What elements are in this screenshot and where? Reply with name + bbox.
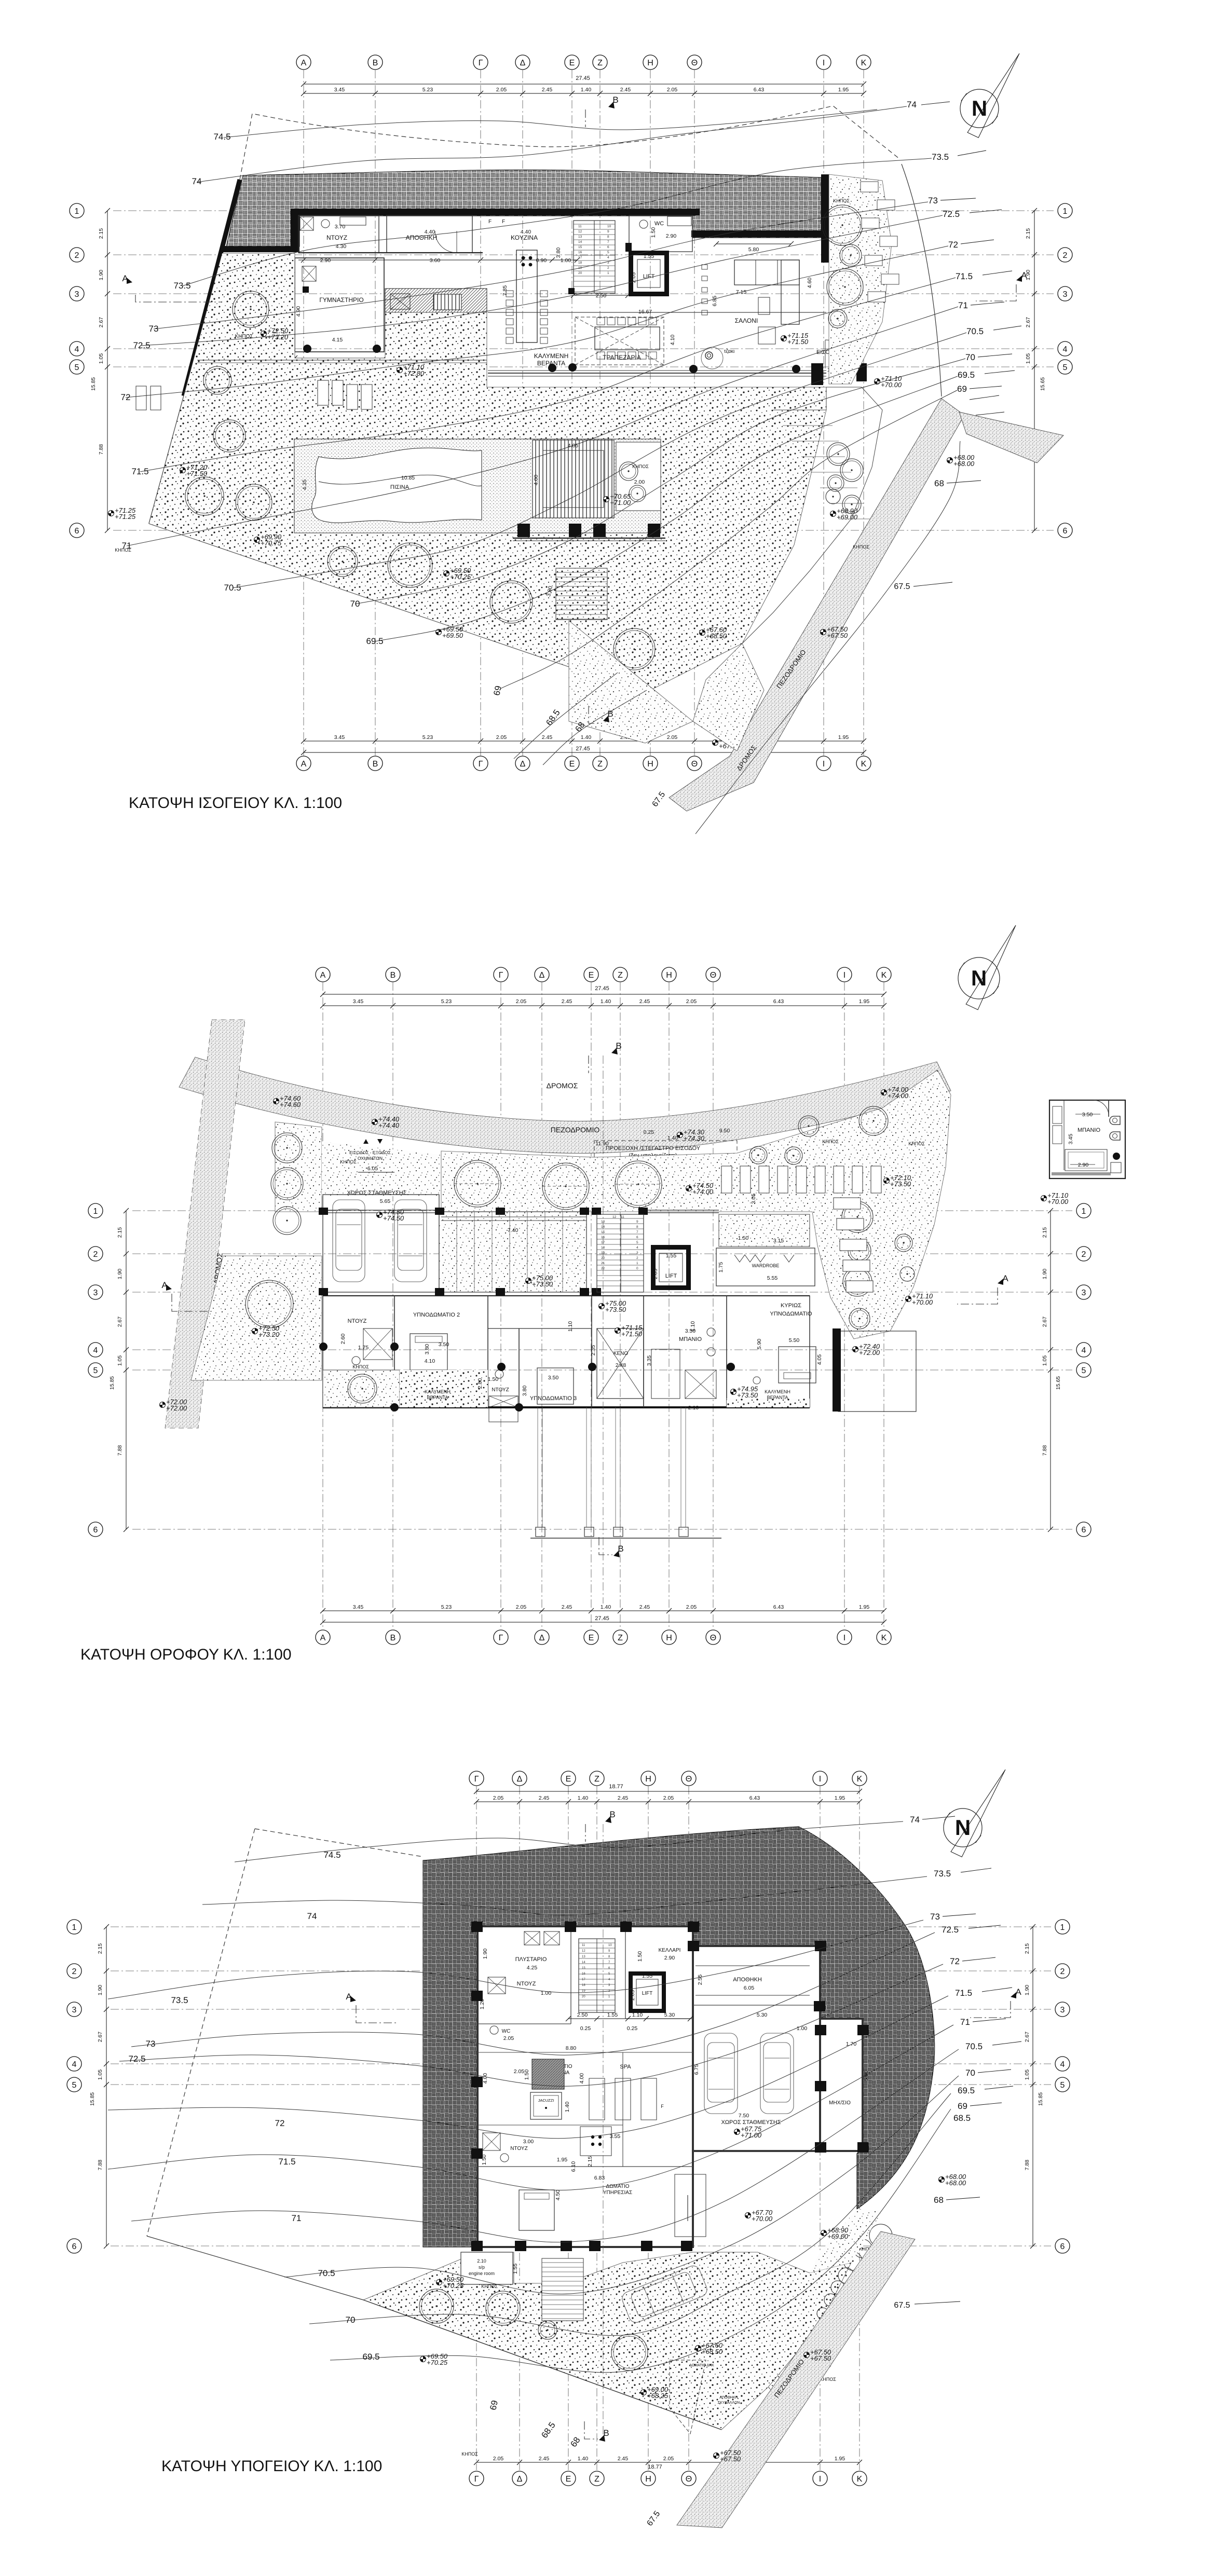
svg-text:1.95: 1.95 (838, 734, 849, 741)
svg-text:6.05: 6.05 (744, 1985, 755, 1991)
svg-text:7.88: 7.88 (1024, 2160, 1030, 2171)
svg-text:74.5: 74.5 (323, 1850, 340, 1860)
svg-text:1.75: 1.75 (718, 1262, 724, 1273)
svg-text:Ε: Ε (569, 760, 575, 769)
svg-text:Ε: Ε (566, 2475, 571, 2484)
svg-text:6.43: 6.43 (773, 1604, 784, 1610)
svg-text:ΑΠΟΘΗΚΗ: ΑΠΟΘΗΚΗ (733, 1977, 762, 1983)
svg-text:+68.25: +68.25 (647, 2392, 669, 2400)
svg-text:2.05: 2.05 (493, 2456, 504, 2462)
svg-text:4: 4 (636, 1246, 638, 1250)
svg-text:engine room: engine room (469, 2271, 495, 2276)
svg-text:1.00: 1.00 (797, 2025, 808, 2032)
svg-text:8: 8 (607, 235, 609, 239)
svg-text:1.05: 1.05 (1042, 1355, 1048, 1366)
svg-text:6: 6 (607, 245, 609, 249)
svg-text:+67.50: +67.50 (827, 632, 848, 639)
svg-text:ΠΕΖΟΔΡΟΜΙΟ: ΠΕΖΟΔΡΟΜΙΟ (551, 1126, 600, 1134)
svg-text:+74.40: +74.40 (378, 1121, 400, 1129)
svg-text:2.15: 2.15 (97, 1943, 103, 1954)
svg-text:+72.80: +72.80 (403, 369, 425, 377)
svg-text:Ζ: Ζ (594, 2475, 599, 2484)
svg-text:+68.00: +68.00 (953, 460, 975, 468)
svg-text:4.00: 4.00 (579, 2073, 585, 2084)
svg-text:1.55: 1.55 (666, 1253, 677, 1259)
svg-text:Γ: Γ (499, 971, 503, 980)
svg-text:10.85: 10.85 (401, 475, 415, 481)
svg-text:7.40: 7.40 (508, 1227, 519, 1234)
svg-text:2: 2 (607, 266, 609, 270)
svg-text:20: 20 (582, 1995, 585, 1998)
svg-text:4: 4 (607, 256, 609, 259)
svg-text:2.55: 2.55 (697, 1975, 703, 1985)
svg-text:1.40: 1.40 (581, 734, 592, 741)
svg-text:1.10: 1.10 (632, 2012, 643, 2018)
svg-text:2.67: 2.67 (98, 317, 104, 328)
svg-text:69.5: 69.5 (958, 370, 975, 380)
svg-text:72: 72 (948, 240, 958, 250)
svg-text:+73.20: +73.20 (258, 1331, 280, 1338)
svg-text:1.50: 1.50 (481, 2155, 487, 2166)
svg-text:+67.50: +67.50 (720, 2455, 741, 2463)
svg-text:+74.30: +74.30 (684, 1134, 705, 1142)
svg-text:4: 4 (1060, 2060, 1065, 2069)
svg-text:7.88: 7.88 (1042, 1445, 1048, 1456)
svg-text:ΚΗΠΟΣ: ΚΗΠΟΣ (340, 1159, 357, 1164)
svg-text:2.50: 2.50 (596, 293, 607, 299)
svg-text:2.15: 2.15 (1024, 1943, 1030, 1954)
svg-text:2.05: 2.05 (516, 1604, 527, 1610)
svg-text:1.40: 1.40 (564, 2102, 570, 2113)
svg-text:67.5: 67.5 (894, 2301, 910, 2310)
svg-text:ΑΠΟΘΗΚΗ: ΑΠΟΘΗΚΗ (719, 2396, 738, 2400)
svg-text:+70.00: +70.00 (1047, 1198, 1069, 1205)
svg-text:4.10: 4.10 (425, 1358, 435, 1364)
svg-text:ΚΑΤΟΨΗ ΙΣΟΓΕΙΟΥ ΚΛ. 1:100: ΚΑΤΟΨΗ ΙΣΟΓΕΙΟΥ ΚΛ. 1:100 (129, 794, 342, 812)
svg-text:Κ: Κ (857, 1775, 863, 1784)
svg-text:1.40: 1.40 (667, 1135, 678, 1141)
svg-text:4.25: 4.25 (527, 1965, 538, 1971)
svg-text:ΚΥΡΙΩΣ: ΚΥΡΙΩΣ (781, 1303, 801, 1309)
svg-text:73: 73 (928, 196, 938, 205)
svg-text:5: 5 (93, 1366, 98, 1375)
svg-text:2: 2 (72, 1967, 77, 1976)
svg-text:1.90: 1.90 (117, 1269, 123, 1280)
svg-text:3: 3 (72, 2006, 77, 2015)
svg-text:3.55: 3.55 (610, 2133, 621, 2140)
svg-text:1: 1 (1060, 1923, 1065, 1932)
svg-text:+70.00: +70.00 (881, 381, 902, 389)
svg-text:2: 2 (636, 1256, 638, 1260)
svg-text:70.5: 70.5 (965, 2041, 983, 2051)
svg-text:+68.50: +68.50 (706, 632, 727, 640)
svg-text:18.77: 18.77 (648, 2464, 662, 2470)
svg-text:2.15: 2.15 (117, 1227, 123, 1238)
svg-text:1.90: 1.90 (98, 270, 104, 281)
svg-text:70: 70 (346, 2315, 356, 2325)
svg-text:ΝΤΟΥΖ: ΝΤΟΥΖ (492, 1387, 509, 1393)
svg-text:2.90: 2.90 (664, 1955, 675, 1961)
svg-text:2.45: 2.45 (618, 1795, 629, 1801)
svg-text:72.5: 72.5 (942, 1925, 959, 1935)
svg-text:13: 13 (578, 235, 582, 239)
svg-text:7.50: 7.50 (739, 2113, 749, 2119)
svg-text:4.35: 4.35 (302, 479, 308, 490)
svg-text:WARDROBE: WARDROBE (752, 1263, 780, 1268)
svg-text:3: 3 (75, 290, 79, 299)
svg-text:N: N (955, 1815, 971, 1840)
svg-text:2.67: 2.67 (117, 1317, 123, 1327)
svg-text:ΜΠΑΝΙΟ: ΜΠΑΝΙΟ (679, 1336, 702, 1342)
svg-text:Α: Α (320, 1634, 326, 1642)
svg-text:10: 10 (607, 225, 611, 228)
svg-text:6.05: 6.05 (367, 1166, 378, 1172)
svg-text:12: 12 (612, 1215, 617, 1219)
svg-text:2.67: 2.67 (97, 2032, 103, 2043)
svg-text:15.85: 15.85 (89, 2092, 96, 2106)
svg-text:+74.00: +74.00 (692, 1188, 714, 1196)
svg-text:70: 70 (965, 352, 975, 362)
svg-text:6.75: 6.75 (693, 2064, 700, 2075)
svg-text:27.45: 27.45 (576, 75, 590, 81)
svg-text:5.55: 5.55 (767, 1275, 778, 1281)
svg-text:3.05: 3.05 (751, 1194, 757, 1204)
svg-text:71.5: 71.5 (956, 271, 973, 281)
svg-text:3: 3 (1063, 290, 1068, 299)
svg-text:1: 1 (636, 1262, 638, 1265)
svg-text:s/p: s/p (479, 2265, 485, 2270)
svg-text:71: 71 (122, 541, 132, 551)
svg-text:2.45: 2.45 (639, 998, 650, 1005)
svg-text:1.05: 1.05 (117, 1355, 123, 1366)
svg-text:ΚΑΛΥΜΕΝΗ: ΚΑΛΥΜΕΝΗ (765, 1389, 790, 1394)
svg-text:2.10: 2.10 (477, 2258, 486, 2264)
svg-text:20: 20 (578, 271, 582, 275)
svg-text:ΚΗΠΟΣ: ΚΗΠΟΣ (853, 544, 869, 550)
svg-text:2: 2 (75, 251, 79, 260)
svg-text:5.90: 5.90 (756, 1339, 762, 1350)
svg-text:Η: Η (666, 1634, 672, 1642)
svg-text:70: 70 (965, 2068, 975, 2078)
svg-text:ΝΤΟΥΖ: ΝΤΟΥΖ (326, 234, 347, 241)
svg-text:+69.00: +69.00 (827, 2232, 849, 2240)
svg-text:3.15: 3.15 (773, 1238, 784, 1244)
svg-text:Κ: Κ (881, 1634, 887, 1642)
svg-text:72.5: 72.5 (128, 2054, 145, 2064)
svg-text:5.30: 5.30 (664, 2012, 675, 2018)
svg-text:ΣΚΥΒΑΛΛΩΝ: ΣΚΥΒΑΛΛΩΝ (718, 2401, 740, 2405)
svg-text:2.05: 2.05 (630, 1990, 636, 2001)
svg-text:ΥΠΝΟΔΩΜΑΤΙΟ 2: ΥΠΝΟΔΩΜΑΤΙΟ 2 (413, 1312, 460, 1318)
svg-text:1.50: 1.50 (524, 2070, 530, 2080)
svg-text:+73.50: +73.50 (532, 1280, 553, 1288)
svg-text:Ι: Ι (843, 1634, 845, 1642)
svg-text:Β: Β (373, 59, 378, 67)
svg-text:1: 1 (75, 207, 79, 216)
svg-text:2.80: 2.80 (477, 1378, 483, 1389)
svg-text:1.95: 1.95 (859, 1604, 870, 1610)
svg-text:+73.50: +73.50 (605, 1306, 626, 1313)
svg-text:17: 17 (582, 1978, 585, 1981)
svg-text:2.50: 2.50 (577, 2012, 588, 2018)
svg-text:5.80: 5.80 (748, 246, 759, 253)
svg-text:11: 11 (578, 225, 582, 228)
svg-text:Θ: Θ (710, 1634, 716, 1642)
svg-text:73: 73 (930, 1912, 940, 1922)
svg-text:15: 15 (582, 1967, 585, 1970)
svg-text:2.05: 2.05 (496, 87, 507, 93)
svg-text:Κ: Κ (861, 760, 867, 769)
svg-text:2.45: 2.45 (620, 87, 631, 93)
svg-text:+73.50: +73.50 (737, 1391, 758, 1399)
svg-text:Ε: Ε (589, 971, 594, 980)
svg-text:2.35: 2.35 (590, 1345, 596, 1356)
svg-text:+70.00: +70.00 (752, 2215, 773, 2223)
svg-text:71: 71 (292, 2213, 302, 2223)
svg-text:ΚΗΠΟΣ: ΚΗΠΟΣ (833, 198, 850, 203)
svg-text:Θ: Θ (691, 59, 698, 67)
svg-text:73: 73 (149, 324, 159, 334)
svg-text:+71.00: +71.00 (741, 2131, 762, 2139)
svg-text:1.20: 1.20 (479, 1999, 485, 2010)
svg-text:2: 2 (93, 1250, 98, 1259)
svg-text:ΚΗΠΟΣ: ΚΗΠΟΣ (632, 464, 649, 469)
svg-text:16.67: 16.67 (638, 309, 652, 315)
svg-text:2.90: 2.90 (666, 233, 677, 239)
svg-text:1.05: 1.05 (1025, 353, 1031, 364)
svg-text:3.45: 3.45 (334, 734, 345, 741)
svg-text:+72.00: +72.00 (859, 1349, 880, 1356)
svg-text:+70.75: +70.75 (261, 539, 282, 547)
svg-text:2: 2 (1060, 1967, 1065, 1976)
svg-text:73.5: 73.5 (173, 281, 190, 291)
svg-text:2.15: 2.15 (587, 2156, 593, 2167)
svg-text:12: 12 (582, 1950, 585, 1953)
svg-text:2.67: 2.67 (1025, 317, 1031, 328)
svg-text:72: 72 (950, 1956, 960, 1966)
svg-text:ΧΩΡΟΣ ΣΤΑΘΜΕΥΣΗΣ: ΧΩΡΟΣ ΣΤΑΘΜΕΥΣΗΣ (347, 1190, 406, 1196)
svg-text:0: 0 (636, 1267, 638, 1270)
svg-text:7.88: 7.88 (97, 2160, 103, 2171)
svg-text:ΒΕΡΑΝΤΑ: ΒΕΡΑΝΤΑ (427, 1395, 448, 1400)
svg-text:1.40: 1.40 (581, 87, 592, 93)
svg-text:9: 9 (607, 230, 609, 234)
svg-text:2.67: 2.67 (1024, 2032, 1030, 2043)
svg-text:Ε: Ε (566, 1775, 571, 1784)
svg-text:1.95: 1.95 (859, 998, 870, 1005)
svg-text:Ι: Ι (823, 59, 825, 67)
svg-text:1.10: 1.10 (567, 1321, 574, 1332)
svg-text:3.80: 3.80 (555, 248, 562, 258)
svg-text:+69.00: +69.00 (837, 513, 858, 521)
svg-text:ΒΕΡΑΝΤΑ: ΒΕΡΑΝΤΑ (767, 1395, 788, 1400)
svg-text:ΠΡΟΕΞΟΧΗ /ΣΤΕΓΑΣΤΡΟ ΕΙΣΟΔΟΥ: ΠΡΟΕΞΟΧΗ /ΣΤΕΓΑΣΤΡΟ ΕΙΣΟΔΟΥ (606, 1145, 701, 1152)
svg-text:73: 73 (146, 2039, 156, 2049)
svg-text:1.50: 1.50 (637, 1951, 643, 1962)
svg-text:+70.25: +70.25 (443, 2282, 464, 2290)
svg-text:15.65: 15.65 (1040, 377, 1046, 391)
svg-text:Η: Η (666, 971, 672, 980)
svg-text:Ι: Ι (819, 1775, 821, 1784)
svg-text:70.5: 70.5 (966, 326, 984, 336)
svg-text:5: 5 (636, 1241, 638, 1244)
svg-text:+74.50: +74.50 (383, 1214, 404, 1222)
svg-text:Η: Η (645, 1775, 651, 1784)
svg-text:1.75: 1.75 (358, 1345, 369, 1351)
svg-text:WC: WC (502, 2029, 511, 2034)
svg-text:7.85: 7.85 (502, 285, 508, 296)
svg-text:27.45: 27.45 (576, 746, 590, 752)
svg-text:2.05: 2.05 (493, 1795, 504, 1801)
svg-text:1.50: 1.50 (650, 227, 657, 238)
svg-text:2.15: 2.15 (1025, 228, 1031, 239)
svg-text:3.45: 3.45 (353, 998, 364, 1005)
svg-text:18.77: 18.77 (609, 1784, 623, 1790)
svg-text:11.90: 11.90 (595, 1141, 609, 1147)
svg-text:6: 6 (1060, 2242, 1065, 2251)
svg-text:2.05: 2.05 (514, 2068, 525, 2075)
svg-text:11: 11 (582, 1944, 585, 1947)
svg-text:Κ: Κ (857, 2475, 863, 2484)
svg-text:2.48: 2.48 (616, 1362, 626, 1368)
svg-text:3: 3 (93, 1289, 98, 1297)
svg-text:+70.00: +70.00 (912, 1298, 933, 1306)
svg-text:68: 68 (934, 478, 944, 488)
svg-text:Ι: Ι (819, 2475, 821, 2484)
svg-text:7: 7 (636, 1230, 638, 1234)
svg-text:ΔΡΟΜΟΣ: ΔΡΟΜΟΣ (547, 1081, 578, 1090)
svg-text:5.30: 5.30 (757, 2012, 768, 2018)
svg-text:1.50: 1.50 (738, 1235, 749, 1241)
svg-text:Β: Β (390, 1634, 396, 1642)
svg-text:Β: Β (390, 971, 396, 980)
svg-text:2.45: 2.45 (539, 2456, 550, 2462)
svg-text:4: 4 (93, 1346, 98, 1355)
svg-text:ΤΡΑΠΕΖΑΡΙΑ: ΤΡΑΠΕΖΑΡΙΑ (603, 354, 641, 361)
svg-text:16: 16 (582, 1972, 585, 1976)
svg-text:3.80: 3.80 (424, 1344, 430, 1355)
svg-text:+70.25: +70.25 (427, 2359, 448, 2366)
svg-text:5.65: 5.65 (380, 1198, 391, 1204)
svg-text:4.40: 4.40 (521, 229, 531, 235)
svg-text:1.90: 1.90 (1024, 1985, 1030, 1996)
svg-text:ΟΧΗΜΑΤΩΝ: ΟΧΗΜΑΤΩΝ (358, 1156, 383, 1161)
svg-text:6: 6 (1063, 527, 1068, 536)
svg-text:1.95: 1.95 (838, 87, 849, 93)
svg-text:18: 18 (582, 1984, 585, 1987)
svg-text:3: 3 (636, 1251, 638, 1255)
svg-text:6.10: 6.10 (570, 2161, 577, 2172)
svg-text:4.00: 4.00 (482, 2073, 488, 2084)
svg-text:1.40: 1.40 (578, 2456, 589, 2462)
svg-text:2.45: 2.45 (618, 2456, 629, 2462)
svg-text:4.40: 4.40 (425, 229, 435, 235)
svg-text:A: A (1002, 1273, 1008, 1283)
svg-text:9: 9 (636, 1220, 638, 1224)
svg-text:69.5: 69.5 (958, 2086, 975, 2095)
svg-text:1.05: 1.05 (97, 2070, 103, 2080)
svg-text:F: F (502, 219, 505, 225)
svg-text:6: 6 (1082, 1526, 1086, 1534)
svg-text:1.90: 1.90 (1042, 1269, 1048, 1280)
svg-text:ΥΠΝΟΔΩΜΑΤΙΟ: ΥΠΝΟΔΩΜΑΤΙΟ (770, 1311, 812, 1317)
svg-text:6: 6 (93, 1526, 98, 1534)
svg-text:2.45: 2.45 (562, 1604, 572, 1610)
svg-text:18: 18 (578, 261, 582, 265)
svg-text:6: 6 (72, 2242, 77, 2251)
svg-text:3: 3 (1060, 2006, 1065, 2015)
svg-text:LIFT: LIFT (665, 1273, 677, 1279)
svg-text:Κ: Κ (881, 971, 887, 980)
svg-text:16: 16 (578, 251, 582, 254)
svg-text:Ζ: Ζ (597, 59, 603, 67)
svg-text:ΚΑΛΥΜΕΝΗ: ΚΑΛΥΜΕΝΗ (534, 352, 568, 360)
svg-text:Δ: Δ (539, 971, 545, 980)
svg-text:72: 72 (275, 2118, 285, 2128)
svg-text:4.50: 4.50 (555, 2190, 561, 2201)
svg-text:LIFT: LIFT (642, 1991, 653, 1996)
svg-text:2.45: 2.45 (542, 87, 553, 93)
svg-text:0.25: 0.25 (644, 1129, 654, 1135)
svg-text:2.00: 2.00 (634, 479, 645, 485)
svg-text:+72.00: +72.00 (166, 1404, 187, 1412)
svg-text:27.45: 27.45 (595, 985, 609, 992)
svg-text:τζακι: τζακι (724, 349, 735, 354)
svg-text:15.85: 15.85 (90, 377, 97, 391)
svg-text:F: F (661, 2104, 664, 2109)
svg-text:ΓΥΜΝΑΣΤΗΡΙΟ: ΓΥΜΝΑΣΤΗΡΙΟ (319, 296, 363, 304)
svg-text:15.85: 15.85 (1038, 2092, 1044, 2106)
svg-text:1.90: 1.90 (482, 1949, 488, 1960)
svg-text:5.50: 5.50 (789, 1337, 800, 1344)
svg-text:0.25: 0.25 (627, 2025, 638, 2032)
svg-text:1.55: 1.55 (642, 1973, 653, 1979)
svg-text:71: 71 (958, 300, 968, 310)
svg-text:68.5: 68.5 (953, 2113, 971, 2123)
svg-text:71.5: 71.5 (955, 1988, 972, 1998)
svg-text:5.23: 5.23 (441, 998, 452, 1005)
svg-text:74.5: 74.5 (213, 132, 230, 142)
svg-text:69: 69 (492, 685, 503, 696)
svg-text:+71.50: +71.50 (186, 470, 208, 477)
svg-text:+68.00: +68.00 (945, 2179, 966, 2187)
svg-text:1: 1 (1063, 207, 1068, 216)
svg-text:Η: Η (645, 2475, 651, 2484)
svg-text:WC: WC (654, 221, 664, 227)
svg-text:1.55: 1.55 (644, 253, 654, 259)
svg-text:3.50: 3.50 (439, 1341, 449, 1348)
svg-text:ΝΤΟΥΖ: ΝΤΟΥΖ (517, 1981, 536, 1987)
svg-text:6: 6 (75, 527, 79, 536)
svg-text:27.45: 27.45 (595, 1615, 609, 1622)
svg-text:74: 74 (307, 1911, 317, 1921)
svg-text:1.95: 1.95 (557, 2157, 568, 2163)
svg-text:5: 5 (72, 2081, 77, 2090)
svg-text:2.05: 2.05 (686, 1604, 697, 1610)
svg-text:2.05: 2.05 (652, 1269, 659, 1280)
svg-text:Θ: Θ (686, 1775, 692, 1784)
svg-text:+71.50: +71.50 (621, 1330, 643, 1338)
svg-text:Δ: Δ (517, 1775, 523, 1784)
svg-text:69: 69 (957, 384, 967, 394)
svg-text:2.05: 2.05 (503, 2035, 514, 2041)
svg-text:ΕΙΣΟΔΟΣ - ΕΞΟΔΟΣ: ΕΙΣΟΔΟΣ - ΕΞΟΔΟΣ (349, 1150, 391, 1155)
svg-text:72.5: 72.5 (133, 340, 150, 350)
svg-text:F: F (488, 219, 492, 225)
svg-text:Κ: Κ (861, 59, 867, 67)
svg-text:Γ: Γ (479, 760, 483, 769)
svg-text:2: 2 (1063, 251, 1068, 260)
